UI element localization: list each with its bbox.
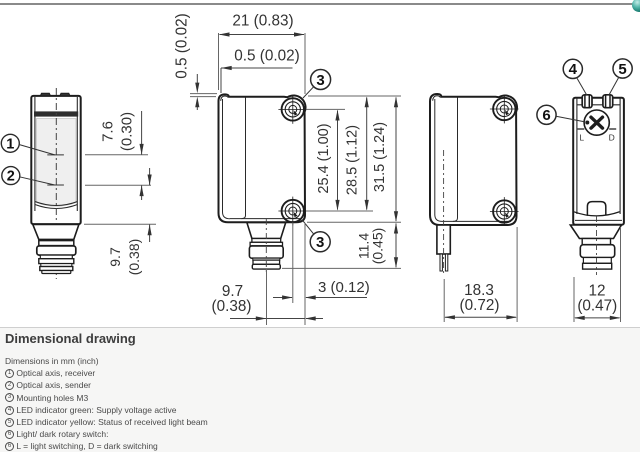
svg-text:(0.30): (0.30) (119, 112, 136, 151)
svg-text:3 (0.12): 3 (0.12) (318, 279, 370, 296)
svg-text:0.5 (0.02): 0.5 (0.02) (174, 13, 191, 78)
svg-text:3: 3 (316, 234, 324, 251)
svg-text:21 (0.83): 21 (0.83) (232, 13, 293, 30)
svg-text:(0.38): (0.38) (212, 298, 252, 315)
svg-text:D: D (609, 133, 615, 143)
svg-text:7.6: 7.6 (100, 121, 117, 142)
svg-text:4: 4 (569, 61, 578, 78)
svg-text:1: 1 (6, 136, 14, 152)
svg-text:L: L (579, 133, 584, 143)
svg-text:(0.72): (0.72) (460, 297, 500, 314)
svg-text:(0.47): (0.47) (577, 298, 617, 315)
svg-text:28.5 (1.12): 28.5 (1.12) (345, 125, 361, 195)
svg-text:0.5 (0.02): 0.5 (0.02) (234, 48, 299, 65)
svg-text:(0.45): (0.45) (370, 228, 386, 265)
svg-text:5: 5 (618, 61, 626, 78)
svg-text:9.7: 9.7 (107, 247, 123, 267)
svg-text:6: 6 (542, 107, 550, 124)
svg-text:2: 2 (7, 169, 15, 185)
svg-text:(0.38): (0.38) (126, 239, 142, 276)
svg-text:3: 3 (316, 72, 324, 89)
svg-text:25.4 (1.00): 25.4 (1.00) (316, 123, 332, 193)
svg-text:31.5 (1.24): 31.5 (1.24) (372, 122, 388, 192)
